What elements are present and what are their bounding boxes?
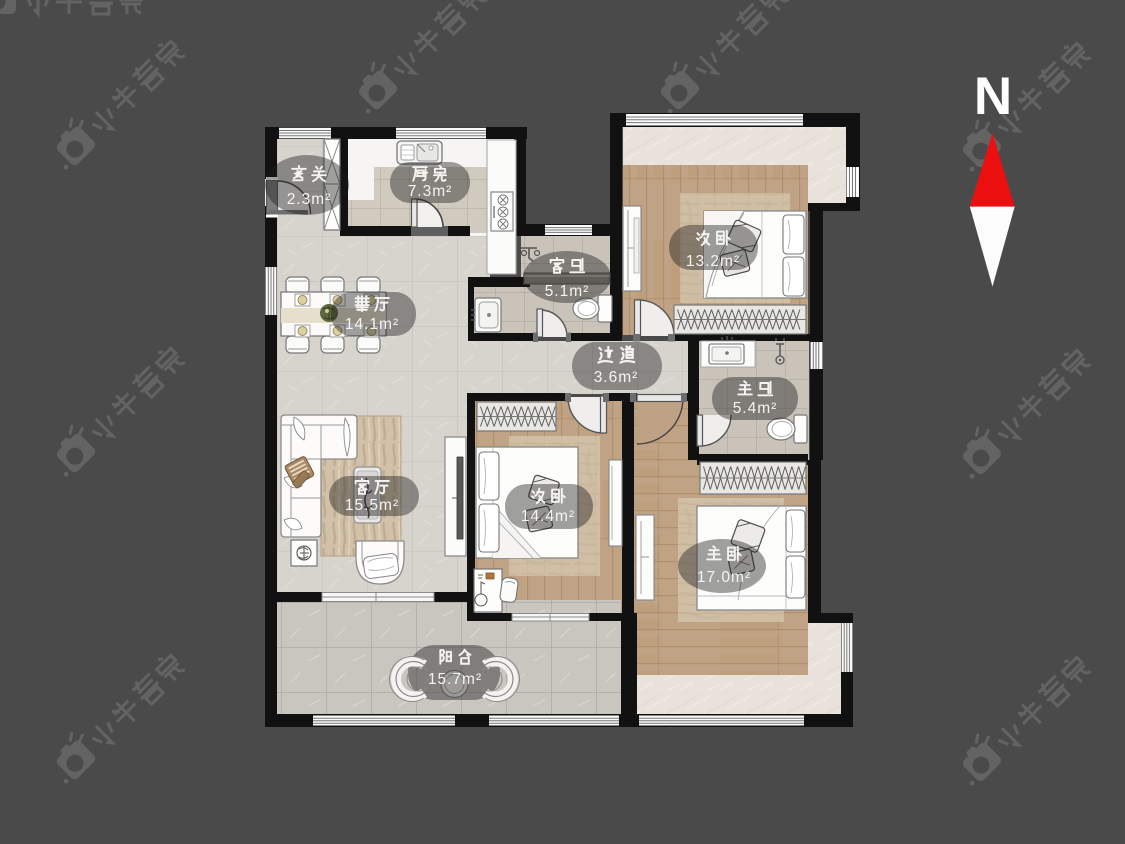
svg-text:15.5m²: 15.5m² — [345, 497, 399, 514]
svg-text:5.1m²: 5.1m² — [545, 283, 590, 300]
svg-text:15.7m²: 15.7m² — [428, 671, 482, 688]
svg-text:N: N — [974, 67, 1012, 126]
svg-text:5.4m²: 5.4m² — [733, 400, 778, 417]
svg-text:13.2m²: 13.2m² — [686, 253, 740, 270]
svg-text:17.0m²: 17.0m² — [697, 569, 751, 586]
svg-text:14.1m²: 14.1m² — [345, 316, 399, 333]
svg-text:14.4m²: 14.4m² — [521, 508, 575, 525]
svg-text:3.6m²: 3.6m² — [594, 369, 639, 386]
svg-text:2.3m²: 2.3m² — [287, 191, 332, 208]
svg-text:7.3m²: 7.3m² — [408, 183, 453, 200]
